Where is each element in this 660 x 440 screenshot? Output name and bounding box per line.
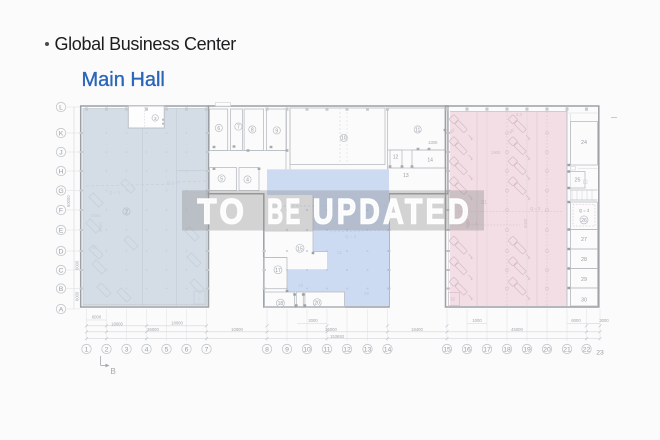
svg-text:K: K [59, 130, 64, 137]
svg-text:18: 18 [278, 301, 284, 307]
svg-text:26: 26 [581, 218, 587, 224]
svg-text:9: 9 [285, 346, 289, 353]
svg-text:18000: 18000 [111, 321, 123, 326]
svg-text:11: 11 [323, 346, 330, 353]
svg-text:6: 6 [185, 346, 189, 353]
svg-text:27: 27 [581, 237, 587, 243]
svg-text:22: 22 [583, 346, 591, 353]
svg-text:21: 21 [337, 250, 343, 255]
svg-text:4: 4 [145, 346, 149, 353]
svg-text:2: 2 [125, 209, 128, 215]
svg-text:2093: 2093 [91, 213, 101, 218]
svg-text:5: 5 [220, 176, 223, 182]
svg-text:1: 1 [85, 346, 89, 353]
svg-text:14: 14 [384, 346, 392, 353]
svg-text:Q = 3: Q = 3 [530, 206, 541, 211]
svg-text:23: 23 [596, 349, 604, 356]
svg-text:8: 8 [265, 346, 269, 353]
svg-text:22: 22 [364, 291, 370, 296]
svg-text:18000: 18000 [171, 321, 183, 326]
svg-text:Q = 3: Q = 3 [579, 208, 590, 213]
svg-text:24: 24 [581, 140, 587, 146]
svg-text:17: 17 [275, 268, 281, 274]
svg-text:15: 15 [443, 346, 451, 353]
svg-text:18: 18 [503, 346, 511, 353]
svg-text:60000: 60000 [66, 195, 71, 207]
svg-text:5: 5 [165, 346, 169, 353]
svg-text:Q = 3: Q = 3 [345, 234, 357, 239]
svg-text:32: 32 [450, 297, 456, 302]
svg-text:36000: 36000 [147, 327, 159, 332]
svg-text:UPDATED: UPDATED [313, 192, 472, 231]
svg-text:19: 19 [523, 346, 531, 353]
svg-text:3000: 3000 [599, 318, 609, 323]
svg-text:9: 9 [275, 128, 278, 134]
svg-text:12: 12 [393, 155, 399, 161]
svg-text:D: D [59, 248, 64, 255]
svg-text:E: E [59, 227, 64, 234]
svg-text:14: 14 [427, 158, 433, 164]
svg-text:10: 10 [341, 136, 347, 142]
svg-text:7: 7 [205, 346, 209, 353]
svg-text:1300: 1300 [428, 140, 438, 145]
svg-text:3: 3 [125, 346, 129, 353]
svg-text:20: 20 [314, 301, 320, 307]
svg-text:7: 7 [237, 125, 240, 131]
svg-text:45000: 45000 [511, 327, 523, 332]
svg-text:15: 15 [297, 246, 303, 252]
svg-text:10: 10 [303, 346, 311, 353]
svg-text:8: 8 [251, 127, 254, 133]
svg-text:Q + 3: Q + 3 [167, 180, 178, 185]
svg-text:BE: BE [267, 192, 303, 231]
svg-text:20: 20 [543, 346, 551, 353]
svg-text:1000: 1000 [472, 318, 482, 323]
svg-text:6000: 6000 [523, 218, 528, 228]
svg-text:6000: 6000 [75, 260, 80, 270]
svg-text:6000: 6000 [571, 318, 581, 323]
svg-text:18400: 18400 [411, 327, 423, 332]
svg-text:G: G [58, 188, 63, 195]
svg-text:28: 28 [581, 257, 587, 263]
svg-text:6000: 6000 [92, 315, 102, 320]
svg-text:H: H [59, 168, 64, 175]
svg-text:L: L [59, 104, 63, 111]
svg-text:6000: 6000 [75, 291, 80, 301]
svg-text:13: 13 [364, 346, 372, 353]
svg-text:10000: 10000 [231, 327, 243, 332]
svg-text:3: 3 [154, 116, 157, 122]
svg-text:J: J [59, 149, 62, 156]
svg-text:2000: 2000 [308, 318, 318, 323]
svg-text:13: 13 [403, 173, 409, 179]
svg-text:4: 4 [246, 177, 249, 183]
svg-text:6: 6 [217, 126, 220, 132]
svg-text:19: 19 [298, 283, 304, 288]
svg-text:29: 29 [581, 277, 587, 283]
svg-text:30: 30 [581, 297, 587, 303]
svg-text:2: 2 [105, 346, 109, 353]
svg-text:25: 25 [575, 177, 581, 183]
svg-text:11: 11 [415, 127, 420, 133]
svg-text:17: 17 [483, 346, 491, 353]
svg-text:16: 16 [463, 346, 471, 353]
svg-text:2.3: 2.3 [516, 112, 522, 117]
svg-text:C: C [59, 267, 64, 274]
svg-text:TO: TO [197, 192, 247, 231]
svg-text:21: 21 [563, 346, 571, 353]
svg-text:Q + 3: Q + 3 [109, 190, 120, 195]
svg-text:12: 12 [343, 346, 351, 353]
svg-text:153693: 153693 [330, 334, 345, 339]
svg-text:B: B [111, 367, 116, 376]
svg-text:1900: 1900 [491, 150, 501, 155]
svg-text:A: A [59, 306, 64, 313]
svg-text:B: B [59, 286, 64, 293]
svg-text:F: F [59, 207, 63, 214]
